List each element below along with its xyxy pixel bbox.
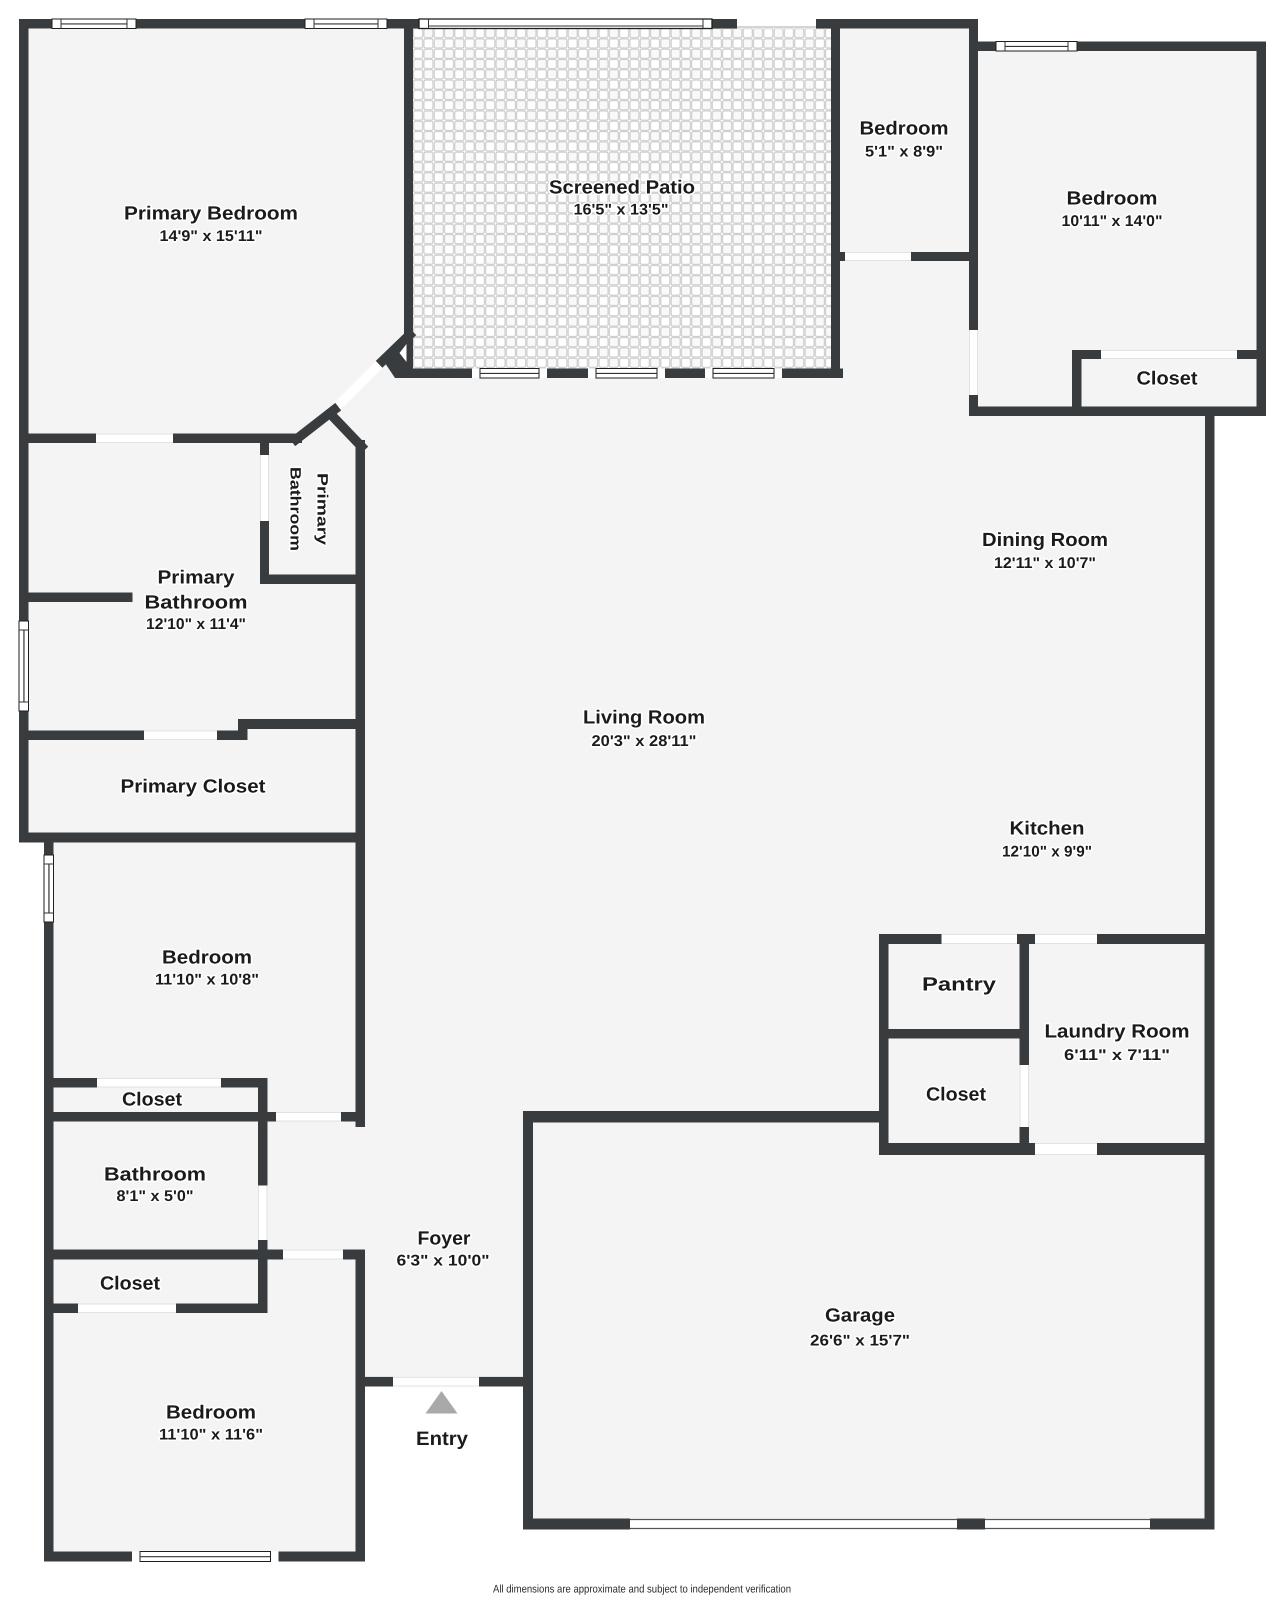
svg-text:Bedroom: Bedroom: [1067, 189, 1158, 210]
svg-text:Laundry Room: Laundry Room: [1045, 1022, 1190, 1043]
svg-text:14'9" x 15'11": 14'9" x 15'11": [160, 228, 263, 245]
svg-text:8'1" x 5'0": 8'1" x 5'0": [117, 1188, 194, 1205]
svg-text:Dining Room: Dining Room: [982, 530, 1108, 551]
svg-text:Bathroom: Bathroom: [287, 467, 304, 551]
svg-text:11'10" x 10'8": 11'10" x 10'8": [155, 972, 259, 989]
svg-text:Closet: Closet: [926, 1085, 987, 1106]
svg-text:26'6" x 15'7": 26'6" x 15'7": [810, 1333, 910, 1350]
svg-text:Bedroom: Bedroom: [860, 119, 949, 140]
svg-text:Bathroom: Bathroom: [104, 1165, 206, 1186]
svg-text:Entry: Entry: [416, 1428, 468, 1450]
svg-text:11'10" x 11'6": 11'10" x 11'6": [159, 1427, 263, 1444]
svg-text:12'10" x 11'4": 12'10" x 11'4": [146, 616, 246, 633]
svg-text:All dimensions are approximate: All dimensions are approximate and subje…: [493, 1584, 791, 1596]
svg-text:6'3" x 10'0": 6'3" x 10'0": [397, 1253, 490, 1270]
svg-text:10'11" x 14'0": 10'11" x 14'0": [1062, 213, 1163, 230]
svg-text:Garage: Garage: [825, 1306, 895, 1327]
svg-text:Bedroom: Bedroom: [166, 1403, 256, 1424]
svg-text:12'11" x 10'7": 12'11" x 10'7": [994, 555, 1096, 572]
svg-text:Bedroom: Bedroom: [162, 948, 252, 969]
svg-text:Closet: Closet: [1137, 369, 1199, 390]
svg-text:Closet: Closet: [122, 1090, 183, 1111]
svg-text:Living Room: Living Room: [583, 708, 705, 729]
svg-text:5'1" x 8'9": 5'1" x 8'9": [865, 144, 943, 161]
svg-text:Primary: Primary: [158, 568, 235, 589]
svg-text:Kitchen: Kitchen: [1010, 819, 1085, 840]
svg-text:Bathroom: Bathroom: [145, 593, 248, 614]
svg-text:Pantry: Pantry: [922, 975, 997, 996]
svg-text:Foyer: Foyer: [418, 1229, 472, 1250]
svg-text:12'10" x 9'9": 12'10" x 9'9": [1002, 844, 1092, 861]
svg-text:6'11" x 7'11": 6'11" x 7'11": [1064, 1047, 1170, 1064]
svg-text:Closet: Closet: [100, 1274, 161, 1295]
svg-text:Primary Bedroom: Primary Bedroom: [124, 204, 298, 225]
svg-text:20'3" x 28'11": 20'3" x 28'11": [592, 733, 697, 750]
svg-text:Screened Patio: Screened Patio: [549, 178, 695, 199]
svg-text:16'5" x 13'5": 16'5" x 13'5": [574, 202, 669, 219]
svg-text:Primary: Primary: [314, 473, 331, 546]
svg-text:Primary Closet: Primary Closet: [121, 777, 267, 798]
